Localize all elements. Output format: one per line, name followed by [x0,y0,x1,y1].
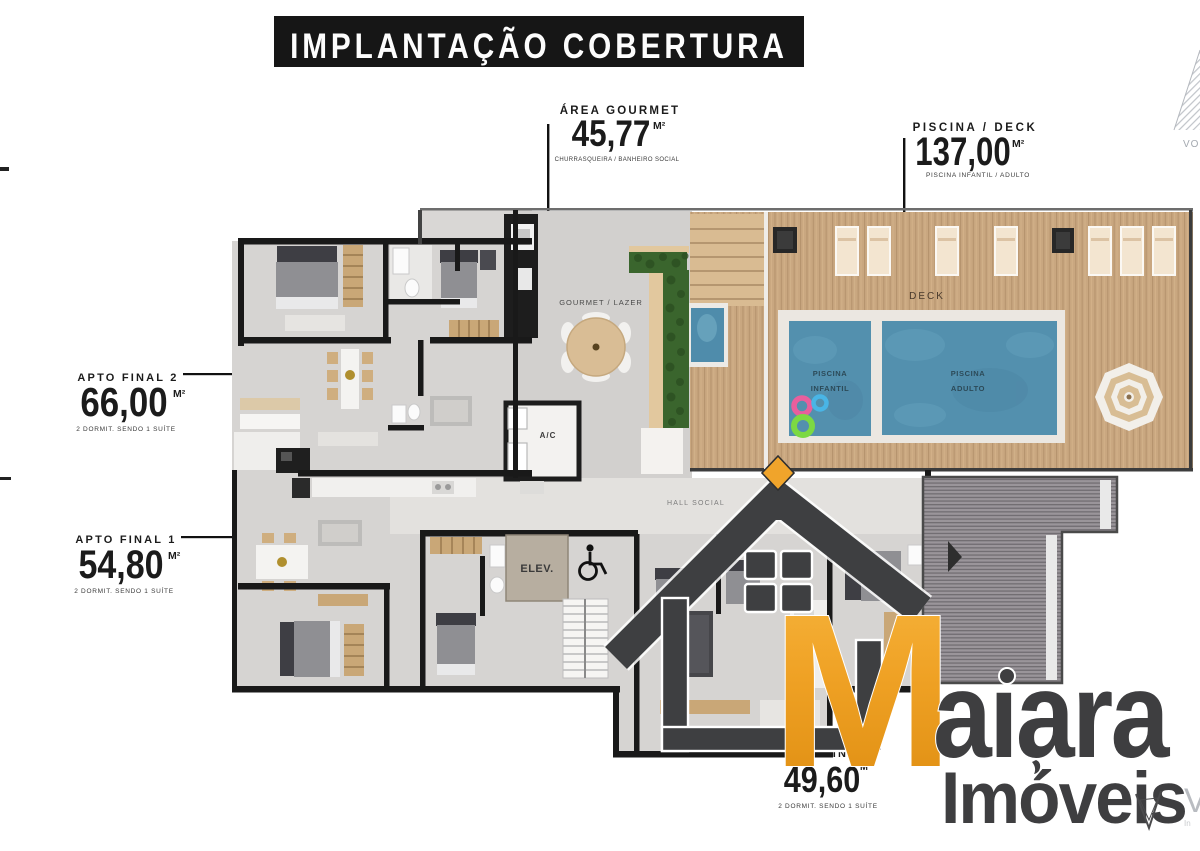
svg-text:ELEV.: ELEV. [520,563,553,575]
svg-text:GOURMET / LAZER: GOURMET / LAZER [559,298,643,307]
svg-text:66,00: 66,00 [80,380,167,425]
svg-text:M²: M² [173,388,186,400]
svg-text:IMPLANTAÇÃO COBERTURA: IMPLANTAÇÃO COBERTURA [290,26,788,66]
svg-text:M: M [771,570,954,813]
svg-text:HALL SOCIAL: HALL SOCIAL [667,500,725,507]
svg-text:2 DORMIT. SENDO 1 SUÍTE: 2 DORMIT. SENDO 1 SUÍTE [74,586,174,595]
svg-text:2 DORMIT. SENDO 1 SUÍTE: 2 DORMIT. SENDO 1 SUÍTE [76,424,176,433]
svg-text:M²: M² [1012,138,1025,150]
svg-text:PISCINA: PISCINA [813,369,848,378]
svg-text:M²: M² [653,120,666,132]
svg-text:PISCINA INFANTIL / ADULTO: PISCINA INFANTIL / ADULTO [926,172,1030,179]
svg-text:DECK: DECK [909,291,945,302]
svg-text:A/C: A/C [540,431,557,440]
svg-text:137,00: 137,00 [915,129,1010,174]
svg-text:PISCINA: PISCINA [951,369,986,378]
svg-text:CHURRASQUEIRA / BANHEIRO SOCIA: CHURRASQUEIRA / BANHEIRO SOCIAL [555,157,680,163]
svg-text:45,77: 45,77 [572,114,651,155]
svg-text:ADULTO: ADULTO [951,384,985,393]
svg-text:VO: VO [1183,139,1199,150]
svg-text:M²: M² [168,550,181,562]
svg-text:54,80: 54,80 [78,541,163,586]
svg-text:In: In [1184,819,1191,828]
svg-text:INFANTIL: INFANTIL [811,384,850,393]
svg-text:V: V [1184,782,1200,820]
